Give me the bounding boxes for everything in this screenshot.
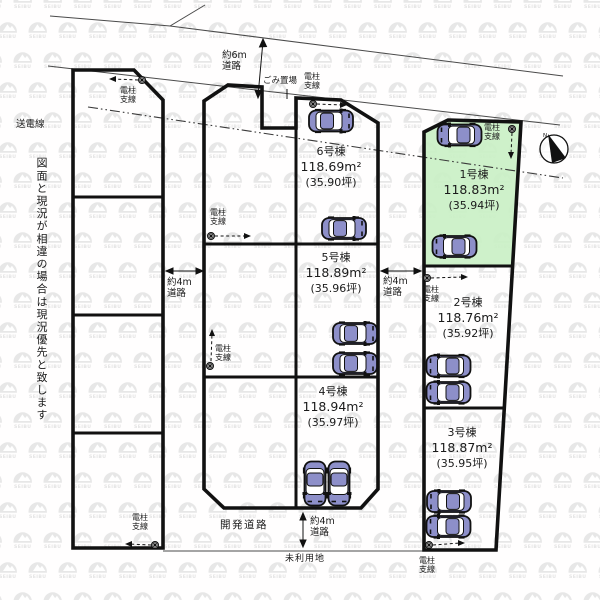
unused-land-label: 未利用地 [285, 551, 325, 564]
road-6m-label: 約6m 道路 [222, 51, 247, 72]
pole-label: 電柱支線 [132, 513, 148, 531]
car-icon [427, 354, 471, 379]
pole-label: 電柱支線 [419, 556, 435, 574]
utility-pole-icon [208, 233, 215, 240]
car-icon [327, 462, 352, 506]
lot-4-label: 4号棟 118.94m² (35.97坪) [303, 385, 364, 430]
car-icon [322, 216, 366, 241]
car-icon [433, 234, 477, 259]
car-icon [333, 351, 377, 376]
utility-pole-icon [424, 275, 431, 282]
utility-pole-icon [509, 126, 516, 133]
car-icon [427, 489, 471, 514]
utility-pole-icon [139, 77, 146, 84]
road-4m-label: 約4m道路 [167, 278, 192, 299]
utility-pole-icon [152, 542, 159, 549]
car-icon [303, 462, 328, 506]
garbage-area-label: ごみ置場 [263, 74, 297, 86]
car-icon [427, 514, 471, 539]
site-plan: SEIBU [0, 0, 600, 600]
car-icon [309, 109, 353, 134]
road-4m-label: 約4m道路 [383, 277, 408, 298]
road-4m-label: 約4m道路 [310, 517, 335, 538]
car-icon [427, 380, 471, 405]
pole-label: 電柱支線 [210, 208, 226, 226]
development-road-label: 開発道路 [220, 517, 268, 532]
car-icon [333, 321, 377, 346]
site-plan-drawing: SEIBU [0, 0, 600, 600]
pole-label: 電柱支線 [304, 72, 320, 90]
lot-6-label: 6号棟 118.69m² (35.90坪) [301, 145, 362, 190]
lot-2-label: 2号棟 118.76m² (35.92坪) [438, 296, 499, 341]
lot-3-label: 3号棟 118.87m² (35.95坪) [432, 426, 493, 471]
pole-label: 電柱支線 [484, 123, 500, 141]
utility-pole-icon [426, 542, 433, 549]
disclaimer-note: 図面と現況が相違の場合は現況優先と致します [33, 157, 49, 447]
pole-label: 電柱支線 [215, 344, 231, 362]
lot-1-label: 1号棟 118.83m² (35.94坪) [444, 168, 505, 213]
utility-pole-icon [207, 363, 214, 370]
pole-label: 電柱支線 [120, 86, 136, 104]
power-line-label: 送電線 [16, 116, 45, 130]
utility-pole-icon [310, 101, 317, 108]
lot-5-label: 5号棟 118.89m² (35.96坪) [306, 251, 367, 296]
compass-icon: N [540, 133, 568, 163]
car-icon [438, 123, 482, 148]
compass-north-label: N [543, 133, 547, 139]
